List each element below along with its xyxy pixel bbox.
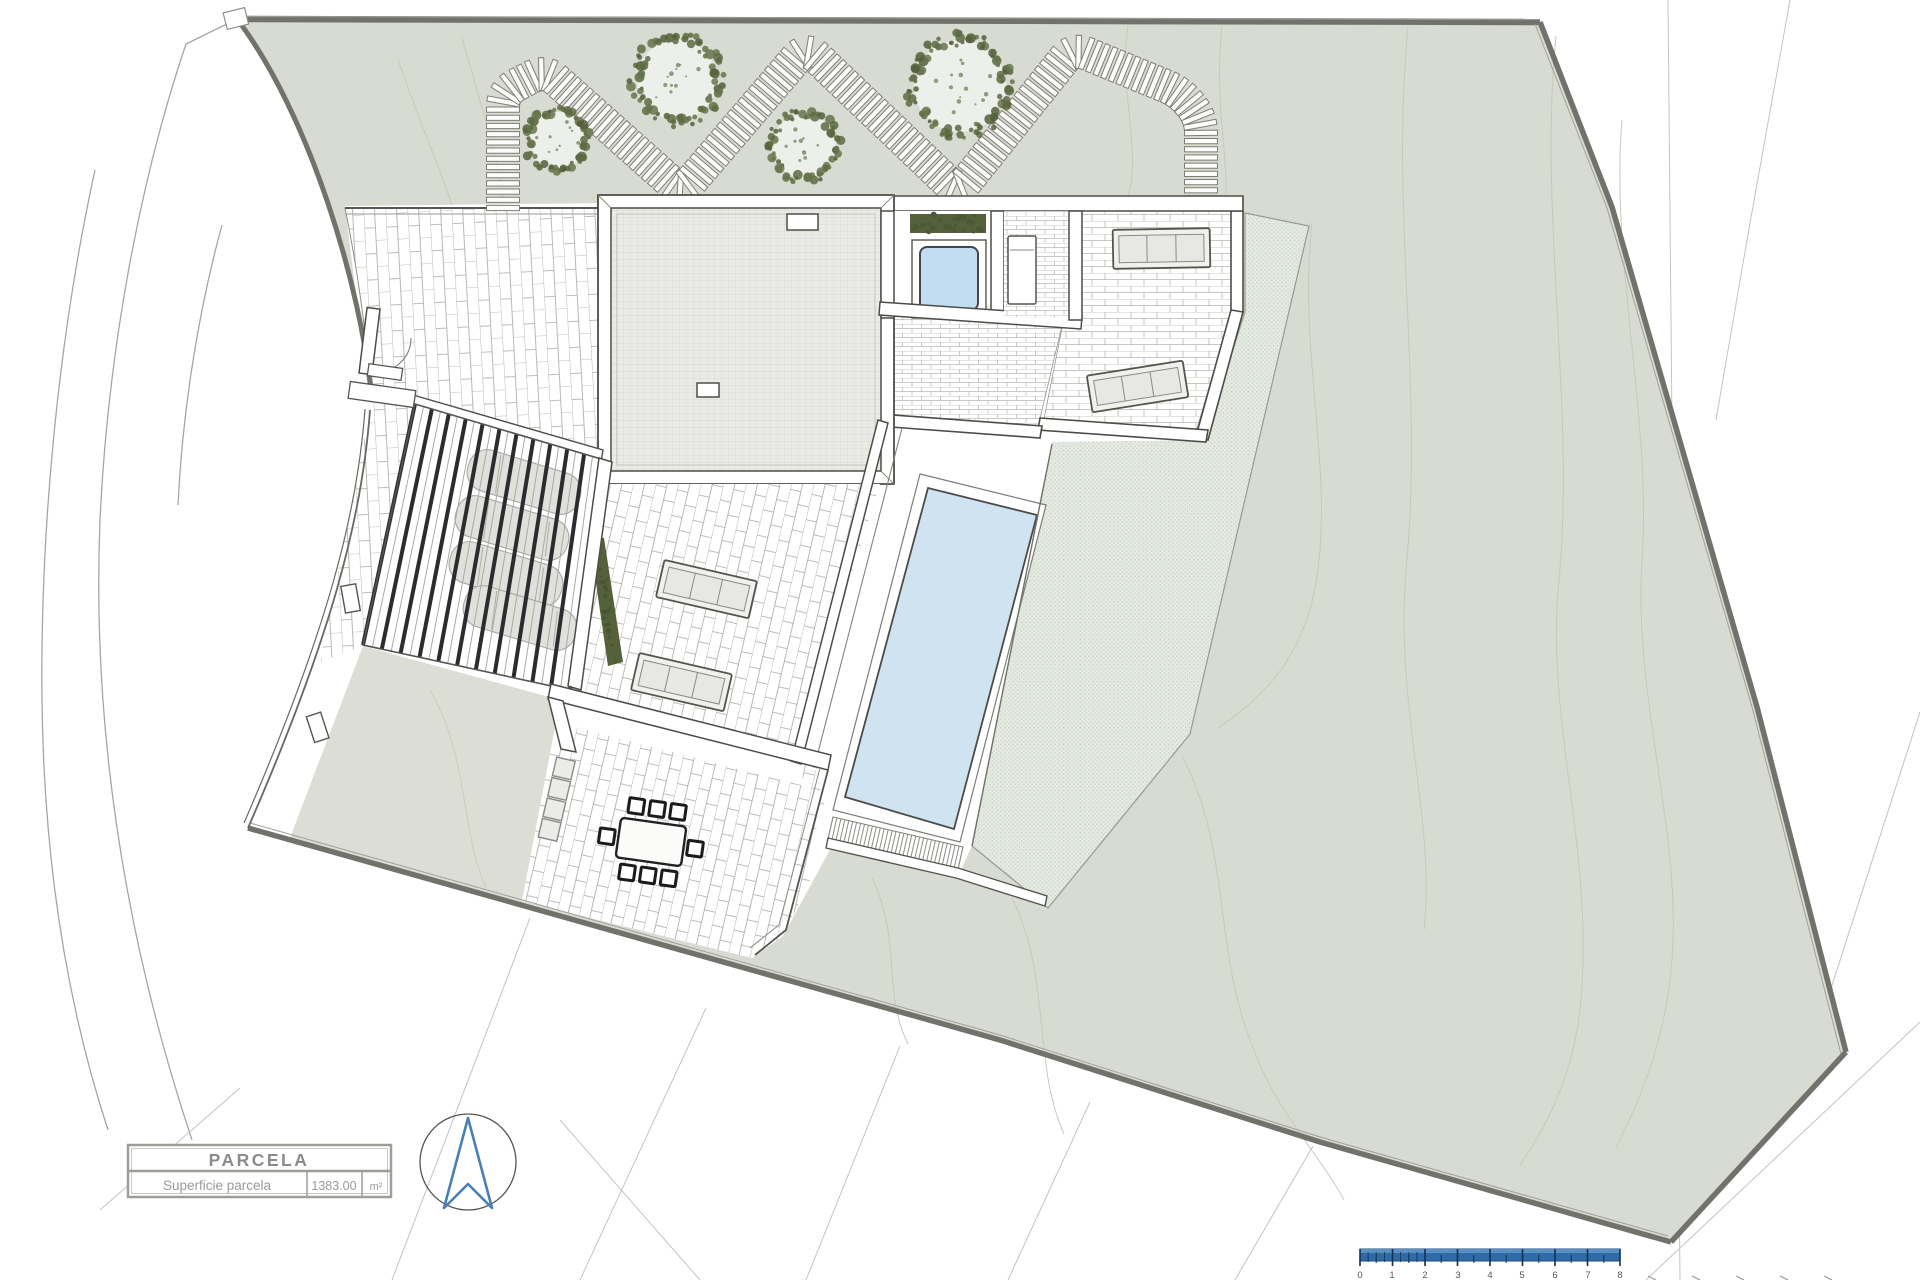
svg-text:5: 5	[1519, 1270, 1524, 1280]
svg-text:Superficie parcela: Superficie parcela	[163, 1178, 272, 1193]
svg-text:3: 3	[1455, 1270, 1460, 1280]
svg-text:7: 7	[1585, 1270, 1590, 1280]
svg-text:1383.00: 1383.00	[311, 1179, 356, 1193]
svg-text:6: 6	[1552, 1270, 1557, 1280]
svg-text:2: 2	[1422, 1270, 1427, 1280]
svg-text:4: 4	[1487, 1270, 1492, 1280]
svg-text:8: 8	[1617, 1270, 1622, 1280]
svg-text:PARCELA: PARCELA	[209, 1150, 310, 1170]
svg-text:m²: m²	[370, 1181, 383, 1193]
svg-text:0: 0	[1357, 1270, 1362, 1280]
svg-text:1: 1	[1389, 1270, 1394, 1280]
